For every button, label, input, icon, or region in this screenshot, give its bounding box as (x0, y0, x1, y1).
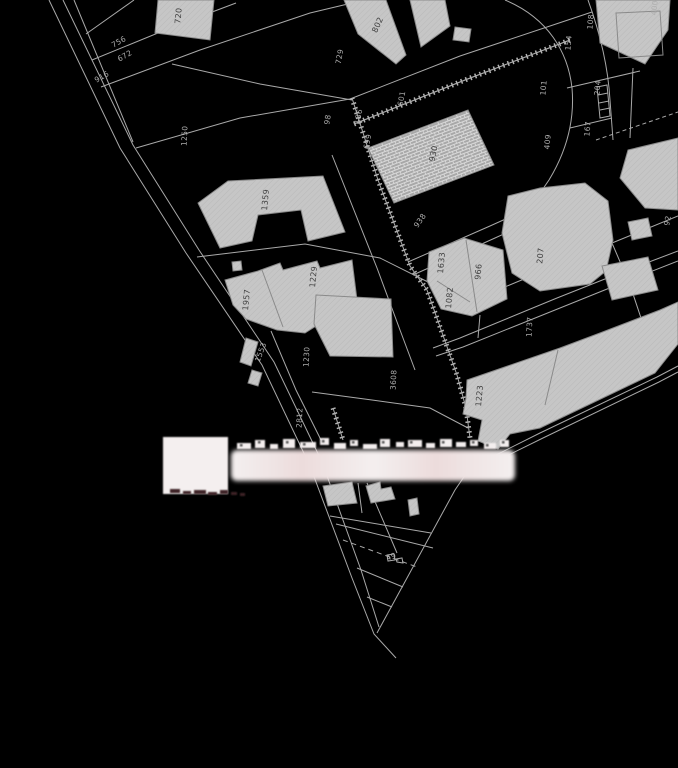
redaction-strip (231, 450, 515, 481)
parcel-label: 756 (110, 34, 128, 49)
below-strip-stub-1 (358, 483, 362, 513)
parcel-label: 3608 (388, 369, 398, 390)
building (314, 295, 393, 357)
blurred-text-fragment (270, 444, 278, 449)
redaction-smudge (208, 492, 217, 495)
building (628, 218, 652, 240)
blurred-text-fragment (334, 443, 346, 449)
blurred-text-fragment (396, 442, 404, 447)
parcel-label: 938 (412, 212, 428, 230)
street-top-1 (86, 0, 134, 34)
cadastral-map-canvas: 7208029301359195712291633966108220712237… (0, 0, 678, 768)
building-label: 1359 (260, 189, 271, 211)
building (596, 0, 670, 64)
curve-road-inner (505, 0, 573, 215)
redaction-smudge (194, 490, 206, 494)
blurred-text-fragment (484, 443, 496, 449)
parcel-label: 204 (592, 80, 602, 96)
building (410, 0, 450, 47)
building-label: 207 (535, 247, 545, 264)
text-remnant-speck (502, 441, 505, 444)
text-remnant-speck (286, 441, 289, 444)
parcel-label: 108 (585, 14, 595, 30)
building-label: 1082 (444, 287, 455, 309)
parcel-label: 672 (116, 48, 134, 63)
text-remnant-speck (258, 441, 261, 444)
text-remnant-speck (352, 441, 355, 444)
platform-rung-3 (600, 108, 610, 110)
parcel-label: 400 (649, 0, 659, 16)
parcel-label: 101 (538, 80, 548, 96)
text-remnant-speck (240, 444, 243, 447)
redaction-white-box (163, 437, 228, 494)
street-top-3 (101, 3, 352, 87)
parcel-label: 186 (353, 108, 365, 125)
blurred-text-fragment (283, 439, 295, 448)
text-remnant-speck (322, 440, 325, 443)
parcel-label: 1737 (524, 316, 534, 337)
building (620, 138, 678, 210)
building-label: 720 (173, 7, 183, 24)
building-label: 1223 (474, 385, 485, 407)
redaction-smudge (183, 491, 191, 494)
blurred-text-fragment (300, 442, 316, 448)
parcel-label: 1230 (301, 346, 311, 367)
parcel-label: 92 (662, 215, 673, 227)
parcel-label: 154 (563, 35, 573, 51)
building-1359 (198, 176, 345, 248)
redaction-smudge (220, 490, 228, 494)
building (602, 257, 658, 300)
text-remnant-speck (303, 443, 306, 446)
platform-rung-2 (599, 101, 609, 103)
text-remnant-speck (382, 441, 385, 444)
parcel-label: 409 (542, 134, 552, 150)
text-remnant-speck (486, 444, 489, 447)
wedge-cross-1b (336, 524, 433, 548)
text-remnant-speck (472, 441, 475, 444)
building (323, 482, 357, 506)
parcel-label: 2812 (294, 407, 304, 428)
parcel-line-mid (312, 392, 468, 428)
connector-1082 (478, 315, 480, 338)
wedge-cross-1 (330, 516, 431, 533)
parcel-label: 98 (322, 114, 333, 126)
blurred-text-fragment (363, 444, 377, 449)
parcel-label: 729 (334, 48, 346, 65)
building-label: 966 (473, 263, 483, 280)
parcel-label: 49 (385, 551, 398, 563)
building-label: 1957 (241, 289, 252, 311)
building-720 (155, 0, 214, 40)
building-207 (502, 183, 613, 291)
wedge-cross-3 (357, 568, 403, 587)
blurred-text-fragment (426, 443, 435, 448)
blurred-text-fragment (456, 442, 466, 447)
blurred-text-fragment (380, 439, 390, 447)
cadastral-map: 7208029301359195712291633966108220712237… (0, 0, 678, 768)
building (366, 482, 395, 503)
building-label: 1229 (308, 266, 319, 288)
text-remnant-speck (442, 441, 445, 444)
retaining-wall-short (333, 408, 343, 440)
redaction-smudge (240, 493, 245, 496)
building-label: 1633 (436, 252, 447, 274)
parcel-label: 1250 (179, 125, 189, 146)
wedge-cross-2 (343, 540, 417, 567)
parcel-label: 167 (582, 121, 592, 137)
text-remnant-speck (410, 441, 413, 444)
building (408, 498, 419, 516)
building (453, 27, 471, 42)
redaction-smudge (231, 492, 237, 495)
blurred-text-fragment (440, 439, 452, 447)
blurred-text-fragment (237, 443, 251, 449)
building-1223 (463, 302, 678, 449)
redaction-smudge (170, 489, 180, 493)
building (232, 261, 242, 271)
building (248, 370, 262, 386)
street-parcel-1250-top (136, 99, 350, 148)
street-junction-east (172, 64, 352, 100)
